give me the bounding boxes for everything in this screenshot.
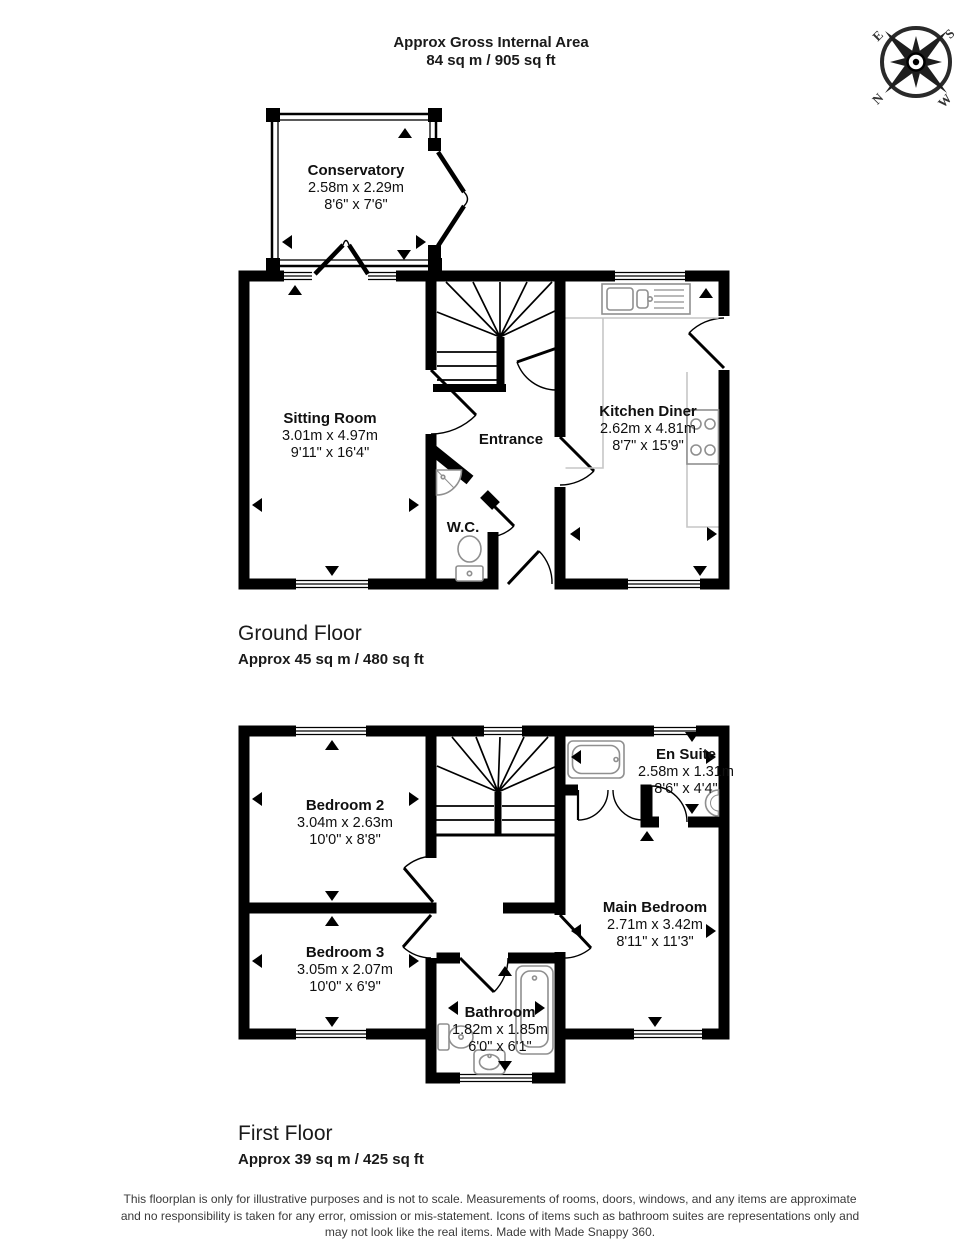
- room-name: Main Bedroom: [570, 899, 740, 917]
- floor-area: Approx 39 sq m / 425 sq ft: [238, 1151, 424, 1168]
- room-label-main-bedroom: Main Bedroom 2.71m x 3.42m 8'11" x 11'3": [570, 899, 740, 952]
- room-label-bedroom-3: Bedroom 3 3.05m x 2.07m 10'0" x 6'9": [265, 944, 425, 997]
- floor-name: Ground Floor: [238, 622, 424, 646]
- floor-name: First Floor: [238, 1122, 424, 1146]
- room-name: Entrance: [446, 431, 576, 449]
- room-name: Sitting Room: [250, 410, 410, 428]
- room-name: W.C.: [423, 519, 503, 537]
- ground-floor-heading: Ground Floor Approx 45 sq m / 480 sq ft: [238, 622, 424, 668]
- room-metric: 2.71m x 3.42m: [570, 917, 740, 935]
- disclaimer-line-3: may not look like the real items. Made w…: [90, 1224, 890, 1241]
- room-imperial: 8'11" x 11'3": [570, 934, 740, 952]
- room-imperial: 10'0" x 8'8": [265, 832, 425, 850]
- room-metric: 2.62m x 4.81m: [568, 421, 728, 439]
- kitchen-sink-icon: [602, 284, 690, 314]
- room-name: En Suite: [607, 746, 765, 764]
- room-label-conservatory: Conservatory 2.58m x 2.29m 8'6" x 7'6": [276, 162, 436, 215]
- room-name: Conservatory: [276, 162, 436, 180]
- room-label-wc: W.C.: [423, 519, 503, 537]
- room-name: Bedroom 3: [265, 944, 425, 962]
- room-imperial: 6'0" x 6'1": [415, 1039, 585, 1057]
- disclaimer-line-2: and no responsibility is taken for any e…: [90, 1208, 890, 1225]
- compass-n-label: N: [869, 90, 887, 108]
- disclaimer: This floorplan is only for illustrative …: [90, 1191, 890, 1241]
- room-metric: 3.01m x 4.97m: [250, 428, 410, 446]
- first-floor-heading: First Floor Approx 39 sq m / 425 sq ft: [238, 1122, 424, 1168]
- room-metric: 3.05m x 2.07m: [265, 962, 425, 980]
- room-label-kitchen-diner: Kitchen Diner 2.62m x 4.81m 8'7" x 15'9": [568, 403, 728, 456]
- room-imperial: 8'7" x 15'9": [568, 438, 728, 456]
- page-title: Approx Gross Internal Area 84 sq m / 905…: [241, 34, 741, 70]
- room-metric: 2.58m x 2.29m: [276, 180, 436, 198]
- room-metric: 1.82m x 1.85m: [415, 1022, 585, 1040]
- room-imperial: 9'11" x 16'4": [250, 445, 410, 463]
- room-label-entrance: Entrance: [446, 431, 576, 449]
- room-label-bathroom: Bathroom 1.82m x 1.85m 6'0" x 6'1": [415, 1004, 585, 1057]
- room-name: Bathroom: [415, 1004, 585, 1022]
- compass-rose-icon: E S N W: [869, 26, 957, 111]
- compass-e-label: E: [869, 27, 886, 44]
- title-line-1: Approx Gross Internal Area: [241, 34, 741, 52]
- room-name: Bedroom 2: [265, 797, 425, 815]
- floorplan-page: E S N W Approx Gross Internal Area 84 sq…: [0, 0, 980, 1252]
- floor-area: Approx 45 sq m / 480 sq ft: [238, 651, 424, 668]
- title-line-2: 84 sq m / 905 sq ft: [241, 52, 741, 70]
- room-imperial: 8'6" x 7'6": [276, 197, 436, 215]
- room-label-sitting-room: Sitting Room 3.01m x 4.97m 9'11" x 16'4": [250, 410, 410, 463]
- room-name: Kitchen Diner: [568, 403, 728, 421]
- disclaimer-line-1: This floorplan is only for illustrative …: [90, 1191, 890, 1208]
- compass-s-label: S: [942, 26, 958, 42]
- room-label-bedroom-2: Bedroom 2 3.04m x 2.63m 10'0" x 8'8": [265, 797, 425, 850]
- room-label-en-suite: En Suite 2.58m x 1.31m 8'6" x 4'4": [607, 746, 765, 799]
- compass-w-label: W: [935, 91, 955, 111]
- room-imperial: 10'0" x 6'9": [265, 979, 425, 997]
- floorplan-canvas: E S N W: [0, 0, 980, 1252]
- room-imperial: 8'6" x 4'4": [607, 781, 765, 799]
- room-metric: 3.04m x 2.63m: [265, 815, 425, 833]
- room-metric: 2.58m x 1.31m: [607, 764, 765, 782]
